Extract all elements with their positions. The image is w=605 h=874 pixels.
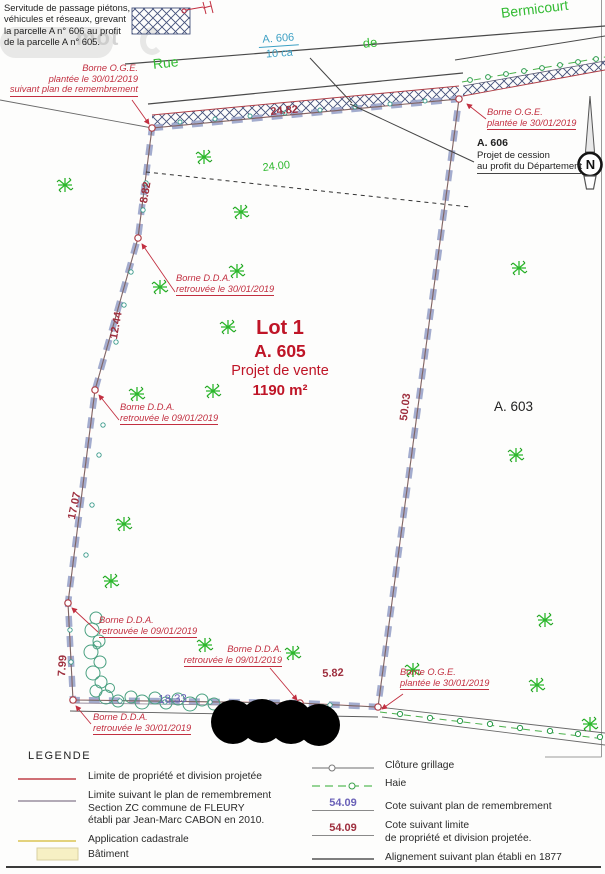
borne-dda-left-mid: Borne D.D.A. retrouvée le 09/01/2019 <box>120 402 218 425</box>
legend-value-cote-limite: 54.09 <box>312 822 374 836</box>
legend-swatch-batiment <box>36 847 80 862</box>
legend-label-remembrement: Limite suivant le plan de remembrement S… <box>88 790 271 828</box>
legend-label-application-cadastrale: Application cadastrale <box>88 834 189 847</box>
legend-symbol-cloture <box>312 762 376 774</box>
north-letter: N <box>583 157 598 172</box>
legend-value-cote-remembrement: 54.09 <box>312 797 374 811</box>
redaction-dots <box>211 699 340 746</box>
borne-dda-bottom-left: Borne D.D.A. retrouvée le 30/01/2019 <box>93 712 191 735</box>
parcel-a606-label: A. 606 10 ca <box>244 30 314 62</box>
borne-oge-bottom-right: Borne O.G.E. plantée le 30/01/2019 <box>400 667 489 690</box>
street-label-de: de <box>362 34 378 50</box>
lot1-label: Lot 1 A. 605 Projet de vente 1190 m² <box>185 316 375 400</box>
borne-oge-top-right: Borne O.G.E. plantée le 30/01/2019 <box>487 107 576 130</box>
legend-symbol-haie <box>312 780 376 792</box>
legend-label-cote-limite: Cote suivant limite de propriété et divi… <box>385 820 532 845</box>
street-label-rue: Rue <box>152 53 179 72</box>
borne-oge-top-left: Borne O.G.E. plantée le 30/01/2019 suiva… <box>0 63 138 97</box>
legend-label-haie: Haie <box>385 778 406 791</box>
legend-label-batiment: Bâtiment <box>88 849 129 862</box>
borne-dda-left-lower: Borne D.D.A. retrouvée le 09/01/2019 <box>99 615 197 638</box>
borne-dda-bottom-center: Borne D.D.A. retrouvée le 09/01/2019 <box>148 644 282 667</box>
cadastral-plan-page: mot <box>0 0 605 874</box>
parcel-a603-label: A. 603 <box>494 399 533 414</box>
legend-line-application-cadastrale <box>18 837 78 845</box>
cadastral-dashed-line <box>146 172 470 207</box>
borne-dda-left-upper: Borne D.D.A. retrouvée le 30/01/2019 <box>176 273 274 296</box>
servitude-hatch-sample <box>132 8 190 34</box>
legend-line-limite-propriete <box>18 775 78 783</box>
plan-drawing <box>0 0 605 874</box>
legend-title: LEGENDE <box>28 750 91 762</box>
measure-bottom-left: 18.33 <box>158 693 187 706</box>
cession-note: A. 606 Projet de cession au profit du Dé… <box>477 138 582 174</box>
legend-line-remembrement <box>18 797 78 805</box>
measure-bottom-right: 5.82 <box>322 667 344 680</box>
measure-top: 24.82 <box>270 104 298 118</box>
legend-label-cloture: Clôture grillage <box>385 760 454 773</box>
legend-label-alignement-1877: Alignement suivant plan établi en 1877 <box>385 852 562 865</box>
legend-label-cote-remembrement: Cote suivant plan de remembrement <box>385 801 552 814</box>
legend-line-alignement-1877 <box>312 855 376 863</box>
measure-left-4: 7.99 <box>56 655 69 677</box>
servitude-note: Servitude de passage piétons, véhicules … <box>4 2 130 48</box>
legend-label-limite-propriete: Limite de propriété et division projetée <box>88 771 262 784</box>
